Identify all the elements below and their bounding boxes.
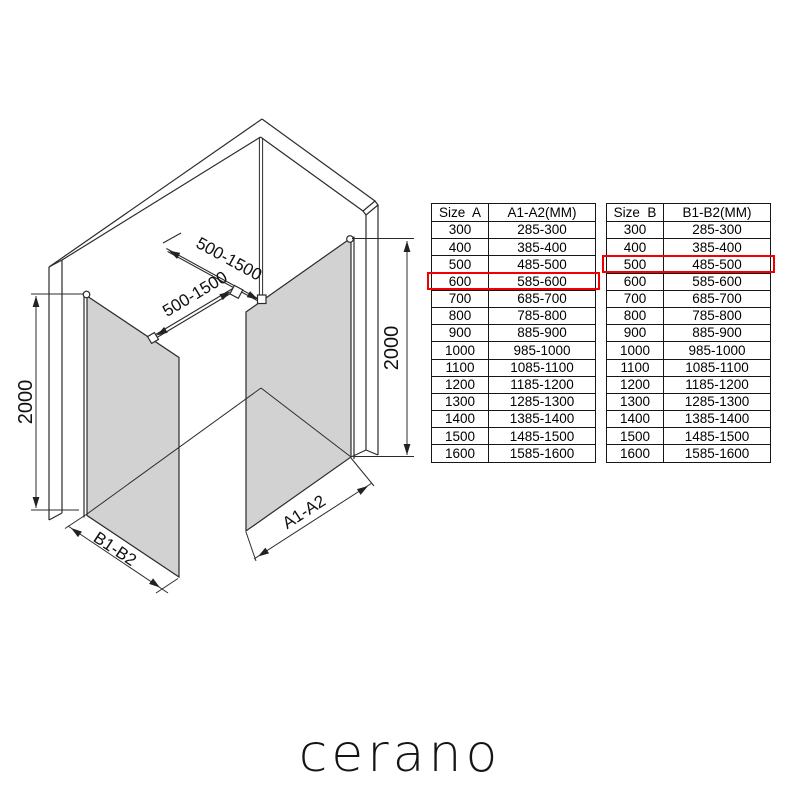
- table-cell: 785-800: [664, 307, 771, 324]
- table-cell: 285-300: [664, 222, 771, 239]
- brand-logo: cerano: [0, 724, 800, 784]
- table-cell: 1385-1400: [489, 411, 596, 428]
- table-cell: 785-800: [489, 307, 596, 324]
- table-cell: 1100: [432, 359, 489, 376]
- table-cell: 1585-1600: [664, 445, 771, 462]
- table-cell: 1400: [432, 411, 489, 428]
- table-cell: 285-300: [489, 222, 596, 239]
- table-cell: 700: [432, 290, 489, 307]
- table-cell: 800: [432, 307, 489, 324]
- table-row: 16001585-1600: [432, 445, 596, 462]
- table-row: 14001385-1400: [432, 411, 596, 428]
- table-cell: 600: [432, 273, 489, 290]
- table-row: 300285-300: [432, 222, 596, 239]
- table-cell: 885-900: [664, 325, 771, 342]
- table-cell: 1185-1200: [664, 376, 771, 393]
- table-row: 900885-900: [607, 325, 771, 342]
- table-cell: 1185-1200: [489, 376, 596, 393]
- table-cell: 1285-1300: [664, 393, 771, 410]
- table-cell: 900: [607, 325, 664, 342]
- table-row: 700685-700: [607, 290, 771, 307]
- table-cell: 885-900: [489, 325, 596, 342]
- table-row: 700685-700: [432, 290, 596, 307]
- table-cell: 900: [432, 325, 489, 342]
- table-row: 1000985-1000: [607, 342, 771, 359]
- dim-label-height-left: 2000: [15, 380, 37, 425]
- table-row: 16001585-1600: [607, 445, 771, 462]
- table-cell: 985-1000: [664, 342, 771, 359]
- dim-height-left: [31, 294, 84, 510]
- table-cell: 1200: [432, 376, 489, 393]
- table-row: 400385-400: [607, 239, 771, 256]
- table-cell: 985-1000: [489, 342, 596, 359]
- table-row: 11001085-1100: [607, 359, 771, 376]
- size-grid: Size BB1-B2(MM)300285-300400385-40050048…: [606, 203, 771, 463]
- table-cell: 300: [432, 222, 489, 239]
- table-cell: 1300: [607, 393, 664, 410]
- table-row: 600585-600: [432, 273, 596, 290]
- page: 500-1500 500-1500 2000 2000 B1-B2 A1-A2 …: [0, 0, 800, 800]
- table-cell: 1085-1100: [489, 359, 596, 376]
- table-cell: 1085-1100: [664, 359, 771, 376]
- table-cell: 700: [607, 290, 664, 307]
- table-cell: 685-700: [489, 290, 596, 307]
- table-row: 300285-300: [607, 222, 771, 239]
- table-cell: 1500: [607, 428, 664, 445]
- table-cell: 500: [432, 256, 489, 273]
- table-row: 1000985-1000: [432, 342, 596, 359]
- table-row: 12001185-1200: [432, 376, 596, 393]
- column-header: Size A: [432, 204, 489, 222]
- table-cell: 385-400: [489, 239, 596, 256]
- table-cell: 585-600: [489, 273, 596, 290]
- table-cell: 585-600: [664, 273, 771, 290]
- table-row: 800785-800: [432, 307, 596, 324]
- table-cell: 1585-1600: [489, 445, 596, 462]
- table-row: 13001285-1300: [432, 393, 596, 410]
- table-cell: 685-700: [664, 290, 771, 307]
- table-cell: 1600: [432, 445, 489, 462]
- table-row: 14001385-1400: [607, 411, 771, 428]
- table-cell: 1485-1500: [664, 428, 771, 445]
- table-cell: 1300: [432, 393, 489, 410]
- table-row: 13001285-1300: [607, 393, 771, 410]
- table-cell: 1100: [607, 359, 664, 376]
- table-row: 600585-600: [607, 273, 771, 290]
- table-cell: 1000: [432, 342, 489, 359]
- table-cell: 1285-1300: [489, 393, 596, 410]
- size-table-b: Size BB1-B2(MM)300285-300400385-40050048…: [606, 203, 771, 463]
- table-cell: 400: [607, 239, 664, 256]
- table-cell: 500: [607, 256, 664, 273]
- table-cell: 485-500: [489, 256, 596, 273]
- table-cell: 1385-1400: [664, 411, 771, 428]
- table-cell: 1200: [607, 376, 664, 393]
- table-row: 12001185-1200: [607, 376, 771, 393]
- table-row: 900885-900: [432, 325, 596, 342]
- table-row: 500485-500: [432, 256, 596, 273]
- table-cell: 300: [607, 222, 664, 239]
- table-cell: 800: [607, 307, 664, 324]
- table-cell: 1600: [607, 445, 664, 462]
- table-row: 15001485-1500: [607, 428, 771, 445]
- table-cell: 1485-1500: [489, 428, 596, 445]
- dim-label-bar-bottom: 500-1500: [159, 267, 230, 320]
- table-cell: 1500: [432, 428, 489, 445]
- table-row: 400385-400: [432, 239, 596, 256]
- table-row: 15001485-1500: [432, 428, 596, 445]
- dim-label-height-right: 2000: [381, 326, 403, 371]
- column-header: A1-A2(MM): [489, 204, 596, 222]
- table-row: 500485-500: [607, 256, 771, 273]
- table-row: 800785-800: [607, 307, 771, 324]
- table-cell: 1000: [607, 342, 664, 359]
- table-cell: 400: [432, 239, 489, 256]
- table-cell: 485-500: [664, 256, 771, 273]
- size-table-a: Size AA1-A2(MM)300285-300400385-40050048…: [431, 203, 596, 463]
- size-grid: Size AA1-A2(MM)300285-300400385-40050048…: [431, 203, 596, 463]
- table-row: 11001085-1100: [432, 359, 596, 376]
- table-cell: 600: [607, 273, 664, 290]
- table-cell: 1400: [607, 411, 664, 428]
- table-cell: 385-400: [664, 239, 771, 256]
- column-header: B1-B2(MM): [664, 204, 771, 222]
- column-header: Size B: [607, 204, 664, 222]
